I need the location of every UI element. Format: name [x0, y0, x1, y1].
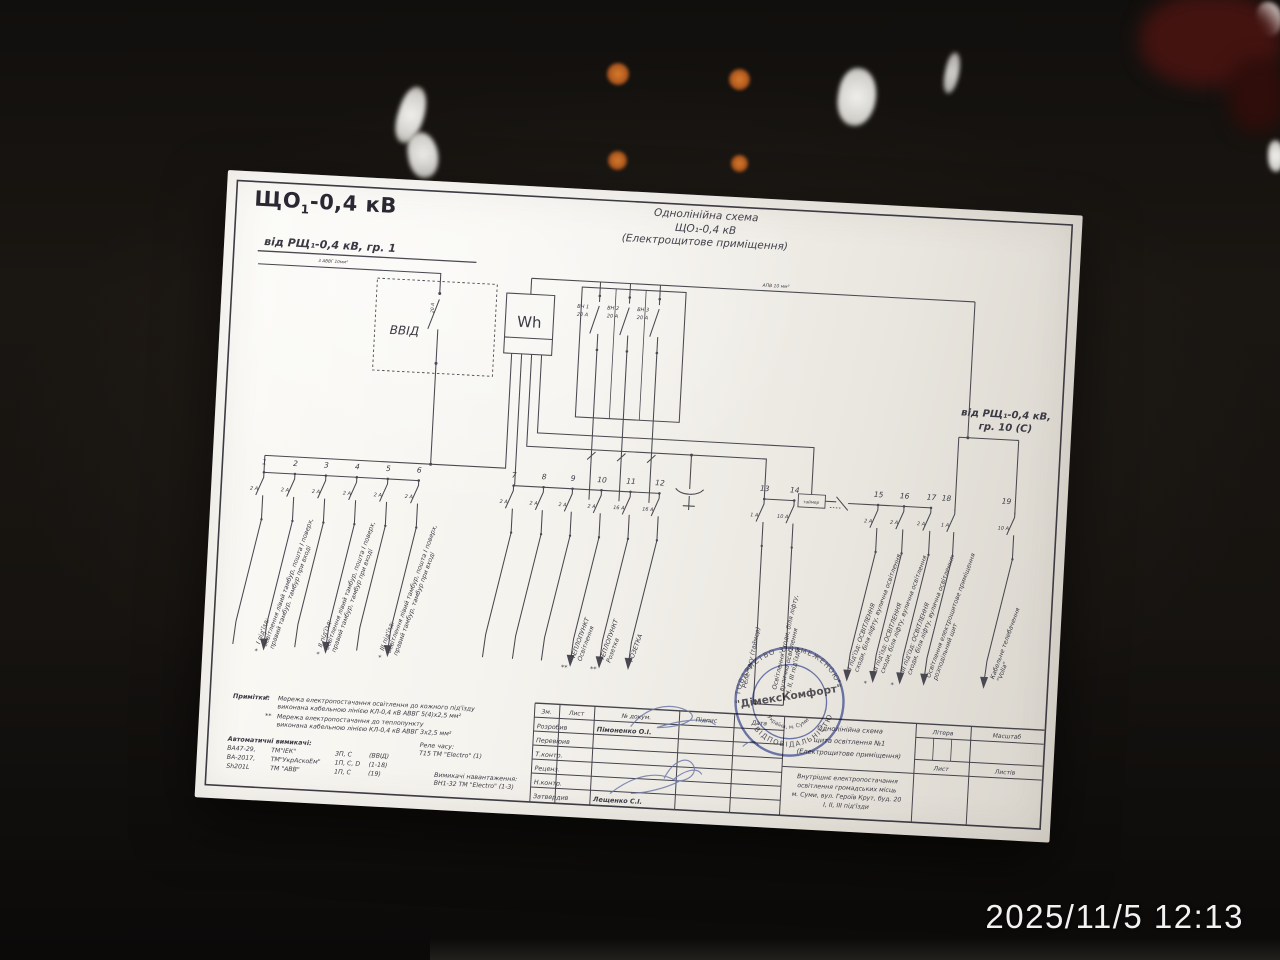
camera-timestamp: 2025/11/5 12:13	[985, 898, 1244, 936]
relay-note-value: Т15 ТМ "Electro" (1)	[419, 749, 482, 760]
circuit-number: 13	[760, 484, 770, 494]
circuit-breaker-symbol	[1005, 512, 1014, 559]
circuit-feeder-line	[233, 518, 262, 645]
footnote-marker: *	[254, 647, 258, 655]
feed-right-label-line1: від РЩ₁-0,4 кВ,	[961, 407, 1051, 423]
titleblock-row-label: Реценз.	[534, 765, 560, 773]
titleblock-header: Зм.	[541, 708, 552, 716]
svg-text:Україна, м. Суми: Україна, м. Суми	[765, 708, 812, 734]
titleblock-header: Лист	[568, 710, 585, 718]
company-stamp: ТОВАРИСТВО З ОБМЕЖЕНОЮ ВІДПОВІДАЛЬНІСТЮ …	[721, 633, 858, 770]
footnote-marker: *	[890, 681, 894, 689]
wiring-diagram: від РЩ₁-0,4 кВ, гр. 1 3 АВВГ 10мм² ВВІД …	[195, 170, 1083, 843]
circuit-breaker-symbol	[922, 508, 931, 555]
circuit-number: 5	[386, 464, 391, 473]
sheets-header: Листів	[994, 769, 1016, 777]
litera-header: Літера	[931, 729, 954, 737]
scale-header: Масштаб	[993, 732, 1022, 741]
circuit-label: І під'їзд:освітлення лівий тамбур, пошта…	[254, 515, 322, 650]
titleblock-header: № докум.	[621, 713, 652, 722]
vn2-amp: 20 А	[607, 313, 619, 320]
circuit-amp-rating: 16 А	[613, 505, 625, 512]
circuit-breaker-symbol	[316, 475, 325, 522]
feed-left-cable-note: 3 АВВГ 10мм²	[318, 258, 348, 265]
breaker-spec: ТМ "АВВ"	[270, 765, 300, 774]
circuit-number: 9	[570, 474, 575, 483]
arrowhead	[896, 672, 905, 684]
ceiling-light-dot	[607, 63, 629, 85]
circuit-number: 16	[900, 491, 910, 501]
vn-enclosure	[575, 287, 686, 422]
circuit-amp-rating: 2 А	[587, 504, 596, 510]
circuit-number: 8	[541, 472, 546, 481]
circuit-feeder-line	[295, 521, 324, 648]
vn3-amp: 20 А	[637, 315, 649, 322]
footnote-marker: **	[561, 663, 569, 671]
vn2-name: ВН 2	[607, 305, 619, 312]
approver-name: Лещенко С.І.	[592, 795, 643, 806]
circuit-number: 2	[293, 459, 298, 468]
circuit-amp-rating: 2 А	[864, 518, 873, 524]
vvid-label: ВВІД	[389, 323, 419, 339]
arrowhead	[869, 671, 878, 683]
circuit-label: ІІ під'їзд:освітлення лівий тамбур, пошт…	[316, 518, 384, 653]
ceiling-light-dot	[729, 69, 750, 90]
circuit-breaker-symbol	[895, 506, 904, 553]
circuit-amp-rating: 2 А	[890, 520, 899, 526]
circuit-number: 14	[790, 485, 800, 495]
arrowhead	[979, 677, 988, 689]
vvid-rating: 20 А	[430, 303, 437, 314]
circuit-number: 17	[927, 493, 937, 503]
schematic-sheet: ЩО1-0,4 кВ Однолінійна схема ЩО₁-0,4 кВ …	[195, 170, 1083, 843]
circuit-breaker-symbol	[254, 472, 263, 519]
circuit-breaker-symbol	[621, 491, 630, 538]
circuit-breaker-symbol	[592, 490, 601, 537]
static-wiring	[229, 251, 1067, 829]
vn3-name: ВН 3	[637, 307, 649, 314]
titleblock-header: Підпис	[695, 717, 717, 725]
circuit-number: 15	[874, 490, 884, 500]
circuit-breaker-symbol	[650, 493, 659, 540]
timer-relay-label: таймер	[803, 499, 820, 505]
breaker-spec: ТМ"ІЕК"	[271, 747, 296, 755]
footnote-marker: *	[378, 654, 382, 662]
circuit-breaker-symbol	[563, 488, 572, 535]
bus-cable-note: АПВ 10 мм²	[761, 283, 789, 290]
static-dots	[429, 286, 976, 494]
circuit-amp-rating: 2 А	[529, 501, 538, 507]
circuit-breaker-symbol	[378, 479, 387, 526]
breaker-spec: 3П, С	[335, 751, 353, 759]
circuit-breaker-symbol	[755, 499, 764, 546]
document-paper: ЩО1-0,4 кВ Однолінійна схема ЩО₁-0,4 кВ …	[195, 170, 1083, 843]
circuit-label: ІІІ під'їзд:освітлення лівий тамбур, пош…	[378, 521, 446, 656]
circuit-number: 19	[1001, 497, 1011, 507]
reflection-blob	[1268, 140, 1280, 172]
vn1-name: ВН 1	[577, 304, 589, 311]
titleblock-row-label: Н.контр.	[534, 779, 563, 787]
circuit-feeder-line	[541, 535, 570, 662]
circuit-breaker-symbol	[534, 487, 543, 534]
circuit-amp-rating: 2 А	[250, 486, 259, 492]
circuit-breaker-symbol	[785, 500, 794, 547]
footnote-marker: *	[863, 680, 867, 688]
circuit-breaker-symbol	[945, 509, 954, 556]
red-glare	[1228, 58, 1280, 132]
circuit-breaker-symbol	[347, 477, 356, 524]
footnote-marker: **	[590, 665, 598, 673]
footnote-marker: *	[316, 650, 320, 658]
breaker-spec: (1-18)	[368, 761, 387, 769]
circuit-amp-rating: 2 А	[343, 491, 352, 497]
floor-sheen	[430, 938, 1280, 960]
circuit-label: Кабельне телебачення"Volia"	[988, 606, 1028, 682]
photo-scene: ЩО1-0,4 кВ Однолінійна схема ЩО₁-0,4 кВ …	[0, 0, 1280, 960]
stamp-arc-bottom: Україна, м. Суми	[765, 708, 812, 734]
titleblock-row-label: Т.контр.	[535, 751, 563, 759]
ceiling-light-dot	[608, 151, 627, 170]
circuit-amp-rating: 2 А	[404, 494, 413, 500]
titleblock-row-label: Перевірив	[536, 736, 570, 746]
circuit-number: 10	[597, 475, 607, 485]
titleblock-row-label: Розробив	[537, 722, 568, 732]
circuit-number: 1	[262, 457, 267, 466]
note-marker: *	[266, 694, 270, 702]
sheet-header: Лист	[932, 765, 949, 773]
circuit-breaker-symbol	[869, 505, 878, 552]
circuit-amp-rating: 1 А	[750, 512, 759, 518]
circuit-amp-rating: 2 А	[499, 499, 508, 505]
circuit-number: 12	[655, 478, 665, 488]
circuit-amp-rating: 2 А	[312, 489, 321, 495]
breaker-spec: ТМ"УкрАскоЕм"	[271, 756, 321, 766]
circuit-feeder-line	[512, 533, 541, 660]
breaker-spec: (ВВІД)	[369, 752, 389, 760]
circuit-amp-rating: 16 А	[642, 507, 654, 514]
circuit-breaker-symbol	[409, 480, 418, 527]
project-description-line: І, ІІ, ІІІ під'їзди	[823, 801, 869, 811]
circuit-amp-rating: 2 А	[281, 487, 290, 493]
circuit-number: 6	[417, 465, 422, 474]
stamp-company-name: "ДімексКомфорт"	[734, 682, 843, 711]
circuit-amp-rating: 1 А	[941, 522, 950, 528]
circuit-amp-rating: 2 А	[558, 502, 567, 508]
circuit-number: 11	[626, 477, 636, 486]
circuit-number: 4	[355, 462, 360, 471]
circuit-number: 7	[512, 471, 517, 480]
breaker-spec: 1П, С	[334, 769, 352, 777]
svg-text:ВІДПОВІДАЛЬНІСТЮ: ВІДПОВІДАЛЬНІСТЮ	[751, 711, 838, 754]
vn1-amp: 20 А	[577, 312, 589, 319]
circuit-number: 3	[324, 461, 329, 470]
circuit-breaker-symbol	[285, 474, 294, 521]
note-marker: **	[265, 712, 272, 720]
stamp-arc-mid: ВІДПОВІДАЛЬНІСТЮ	[751, 711, 838, 754]
breaker-spec: ВА-2017,	[227, 754, 256, 763]
circuit-amp-rating: 10 А	[997, 525, 1009, 532]
wh-meter-label: Wh	[517, 313, 542, 332]
circuit-number: 18	[942, 493, 952, 503]
circuit-amp-rating: 10 А	[777, 514, 789, 521]
breaker-spec: 1П, С, D	[334, 760, 360, 768]
feed-right-label-line2: гр. 10 (С)	[978, 421, 1032, 435]
circuit-amp-rating: 2 А	[917, 521, 926, 527]
breaker-spec: ВА47-29,	[227, 745, 256, 754]
breaker-spec: (19)	[368, 770, 381, 778]
circuit-feeder-line	[357, 525, 386, 652]
circuit-feeder-line	[482, 531, 511, 658]
titleblock-row-label: Затвердив	[533, 793, 569, 802]
ceiling-light-dot	[731, 155, 748, 172]
circuit-breaker-symbol	[504, 485, 513, 532]
circuit-amp-rating: 2 А	[374, 492, 383, 498]
breaker-spec: Sh201L	[226, 763, 250, 771]
